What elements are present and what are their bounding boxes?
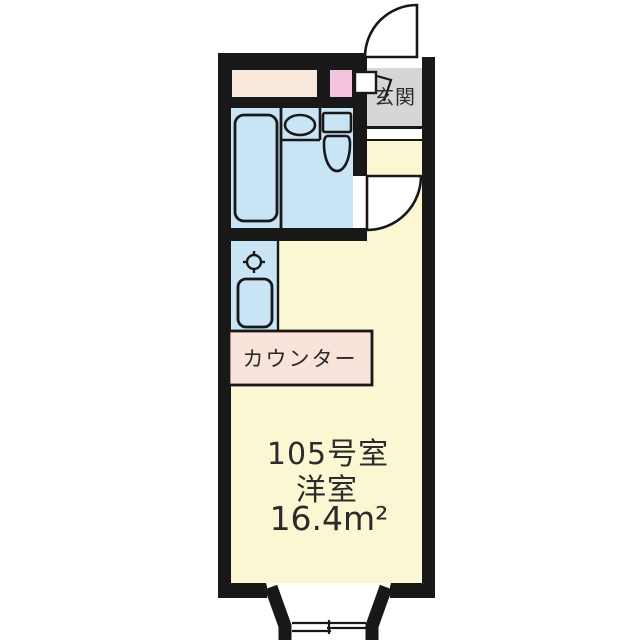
- entrance-label: 玄関: [374, 85, 416, 109]
- unit-number-label: 105号室: [267, 437, 389, 472]
- left-wall: [218, 53, 231, 598]
- counter-label: カウンター: [243, 347, 358, 371]
- floor-plan-drawing: 玄関 カウンター 105号室 洋室 16.4m²: [0, 0, 640, 640]
- room-area-label: 16.4m²: [270, 499, 389, 538]
- entrance-step-edge: [365, 126, 422, 129]
- entrance-step-inner-line: [365, 139, 422, 141]
- toilet-tank: [323, 113, 351, 132]
- bottom-wall-left: [218, 583, 267, 598]
- right-wall: [422, 57, 435, 598]
- kitchen-sink: [238, 279, 272, 327]
- toilet-bowl-icon: [324, 136, 350, 171]
- bathroom-bottom-wall: [218, 228, 367, 241]
- floor-plan-page: 玄関 カウンター 105号室 洋室 16.4m²: [0, 0, 640, 640]
- storage-pink-box: [330, 70, 352, 97]
- closet-box: [232, 70, 317, 97]
- bathtub: [235, 115, 277, 221]
- bathroom-right-wall: [353, 108, 367, 176]
- bathroom-door-opening: [353, 176, 367, 228]
- bottom-wall-right: [390, 583, 435, 598]
- washbasin-icon: [285, 115, 315, 135]
- entrance-step-strip: [365, 129, 422, 139]
- shoe-cabinet: [355, 72, 376, 93]
- entrance-door-arc-icon: [365, 5, 417, 57]
